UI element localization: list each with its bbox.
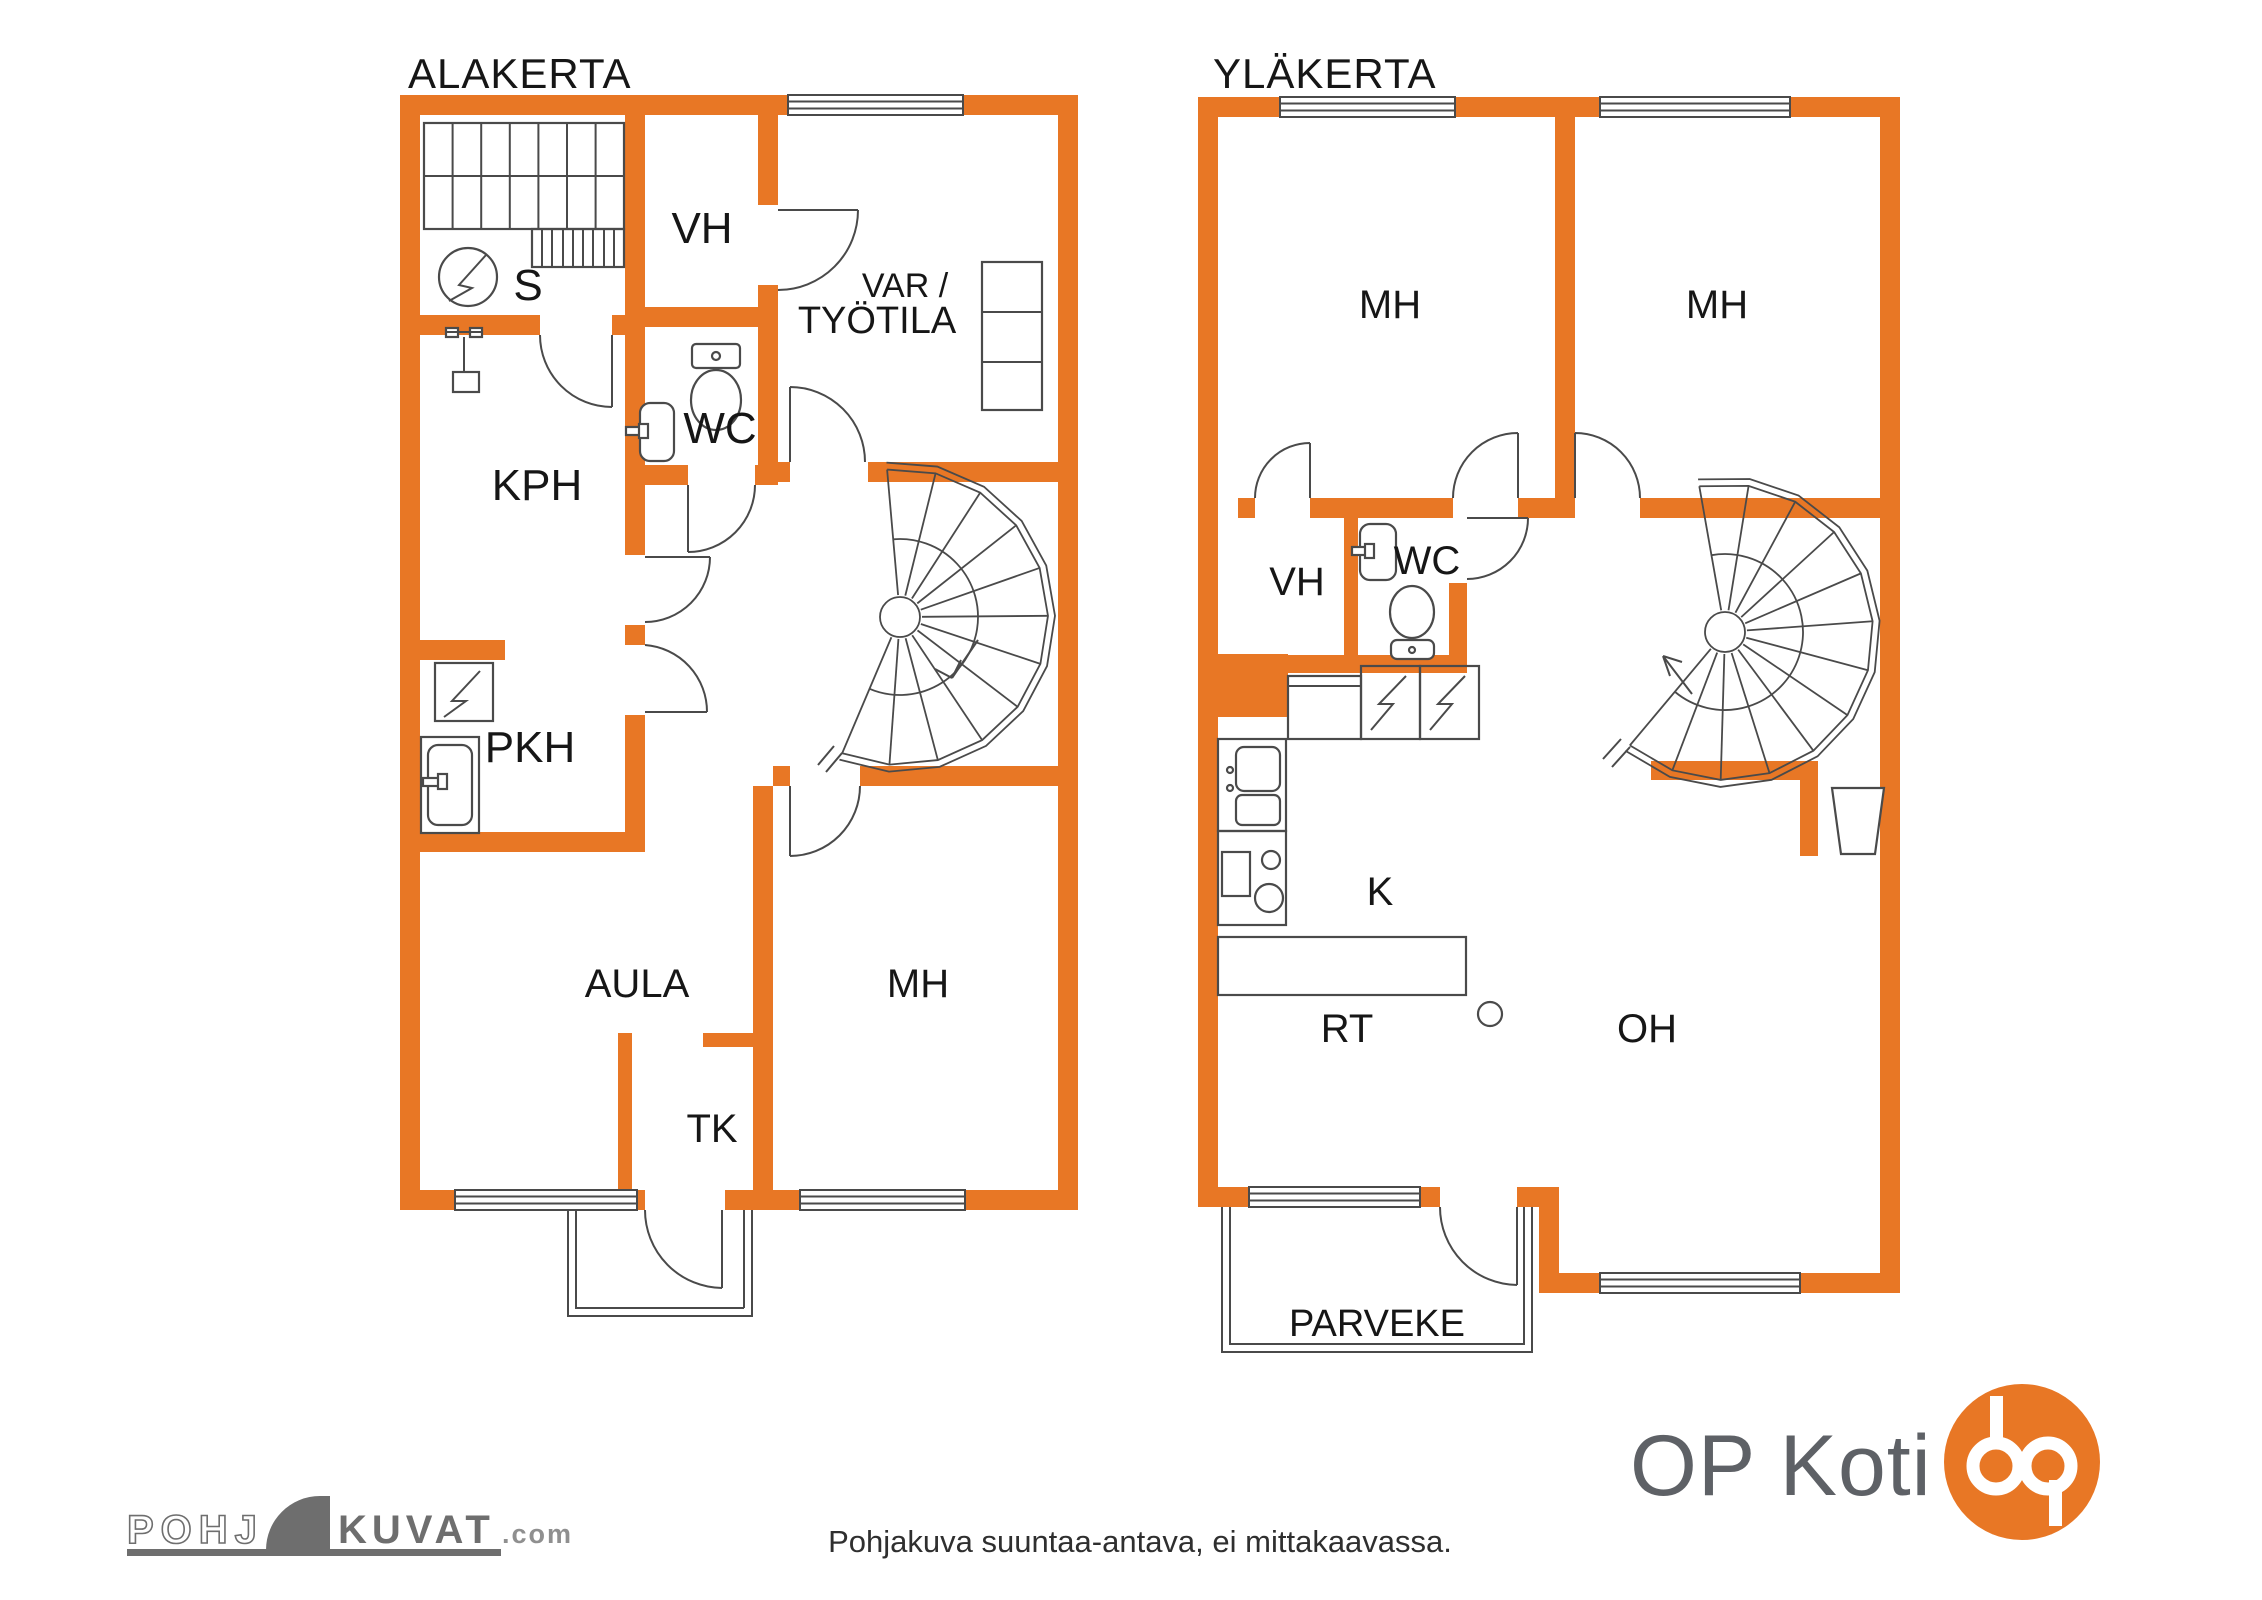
room-label-wc: WC bbox=[1394, 539, 1461, 583]
room-label-hall: AULA bbox=[585, 962, 690, 1006]
door-bedroom2 bbox=[1575, 433, 1640, 498]
sauna-bench-icon bbox=[424, 123, 624, 267]
floor-plan-ylakerta: YLÄKERTA bbox=[1180, 40, 1910, 1370]
shelf-icon bbox=[982, 262, 1042, 410]
window-icon bbox=[1600, 1273, 1800, 1293]
room-label-laundry: PKH bbox=[485, 723, 575, 772]
door-bedroom bbox=[790, 786, 860, 856]
stairs-up-arrow bbox=[1603, 656, 1692, 767]
pohjakuvat-logo-part1: POHJ bbox=[127, 1508, 264, 1552]
washing-machine-icon bbox=[435, 663, 493, 721]
spiral-staircase bbox=[839, 463, 1055, 772]
room-label-wc: WC bbox=[683, 404, 756, 453]
room-label-closet: VH bbox=[1269, 560, 1325, 604]
room-label-bedroom1: MH bbox=[1359, 283, 1421, 327]
room-label-kitchen: K bbox=[1367, 870, 1394, 914]
door-balcony bbox=[1440, 1207, 1517, 1285]
toilet-icon bbox=[1390, 586, 1434, 659]
window-icon bbox=[1249, 1187, 1420, 1207]
room-labels-ylakerta: MH MH VH WC K RT OH PARVEKE bbox=[1269, 283, 1748, 1345]
room-label-vestibule: TK bbox=[686, 1107, 737, 1151]
freezer-icon bbox=[1420, 666, 1479, 739]
kitchen-sink-icon bbox=[1218, 739, 1286, 831]
window-icon bbox=[1280, 97, 1455, 117]
door-bedroom1 bbox=[1453, 433, 1518, 498]
pohjakuvat-logo-underline bbox=[127, 1549, 501, 1556]
room-label-dining: RT bbox=[1321, 1007, 1374, 1051]
kitchen-counter bbox=[1288, 676, 1361, 739]
door-closet bbox=[1255, 443, 1310, 498]
door-entrance bbox=[645, 1210, 722, 1288]
op-logo-icon bbox=[1944, 1384, 2100, 1540]
floor-plan-alakerta: ALAKERTA bbox=[390, 40, 1090, 1370]
door-wc bbox=[1467, 518, 1528, 579]
floor-title-alakerta: ALAKERTA bbox=[408, 50, 632, 97]
room-label-balcony: PARVEKE bbox=[1289, 1303, 1465, 1345]
windows-ylakerta bbox=[1249, 97, 1800, 1293]
door-arc-icon bbox=[266, 1496, 330, 1550]
room-label-living: OH bbox=[1617, 1007, 1677, 1051]
spiral-staircase bbox=[1625, 479, 1879, 787]
door-sauna bbox=[540, 335, 612, 407]
walls-alakerta bbox=[400, 95, 1078, 1210]
door-wc bbox=[688, 485, 755, 552]
op-koti-label: OP Koti bbox=[1630, 1418, 1932, 1514]
floorplan-page: { "colors": { "wall": "#E87725", "line":… bbox=[0, 0, 2262, 1600]
disclaimer-text: Pohjakuva suuntaa-antava, ei mittakaavas… bbox=[828, 1524, 1452, 1559]
window-icon bbox=[788, 95, 963, 115]
floor-title-ylakerta: YLÄKERTA bbox=[1213, 50, 1437, 97]
footer: POHJ KUVAT .com Pohjakuva suuntaa-antava… bbox=[0, 1370, 2262, 1600]
room-label-bedroom2: MH bbox=[1686, 283, 1748, 327]
stove-icon bbox=[1218, 831, 1286, 925]
door-laundry bbox=[645, 645, 707, 712]
walls-ylakerta bbox=[1198, 97, 1900, 1293]
door-storage-hall bbox=[790, 387, 865, 462]
pohjakuvat-logo-part2: KUVAT bbox=[338, 1508, 495, 1552]
room-label-bedroom: MH bbox=[887, 962, 949, 1006]
room-label-bathroom: KPH bbox=[492, 461, 582, 510]
window-icon bbox=[800, 1190, 965, 1210]
sink-icon bbox=[1352, 524, 1396, 580]
fireplace-icon bbox=[1832, 788, 1884, 854]
door-closet-storage bbox=[778, 210, 858, 290]
window-icon bbox=[455, 1190, 637, 1210]
fridge-icon bbox=[1361, 666, 1420, 739]
shower-icon bbox=[446, 328, 482, 392]
pohjakuvat-logo: POHJ KUVAT .com bbox=[127, 1496, 573, 1556]
window-icon bbox=[1600, 97, 1790, 117]
entry-porch-outline bbox=[568, 1210, 752, 1316]
pohjakuvat-logo-part3: .com bbox=[502, 1519, 573, 1549]
room-label-closet: VH bbox=[671, 204, 732, 253]
sauna-stove-icon bbox=[439, 248, 497, 306]
op-koti-logo: OP Koti bbox=[1630, 1384, 2100, 1540]
room-label-storage-2: TYÖTILA bbox=[798, 300, 957, 342]
room-label-sauna: S bbox=[513, 261, 542, 310]
laundry-sink-icon bbox=[421, 737, 479, 833]
door-bathroom bbox=[645, 557, 710, 622]
